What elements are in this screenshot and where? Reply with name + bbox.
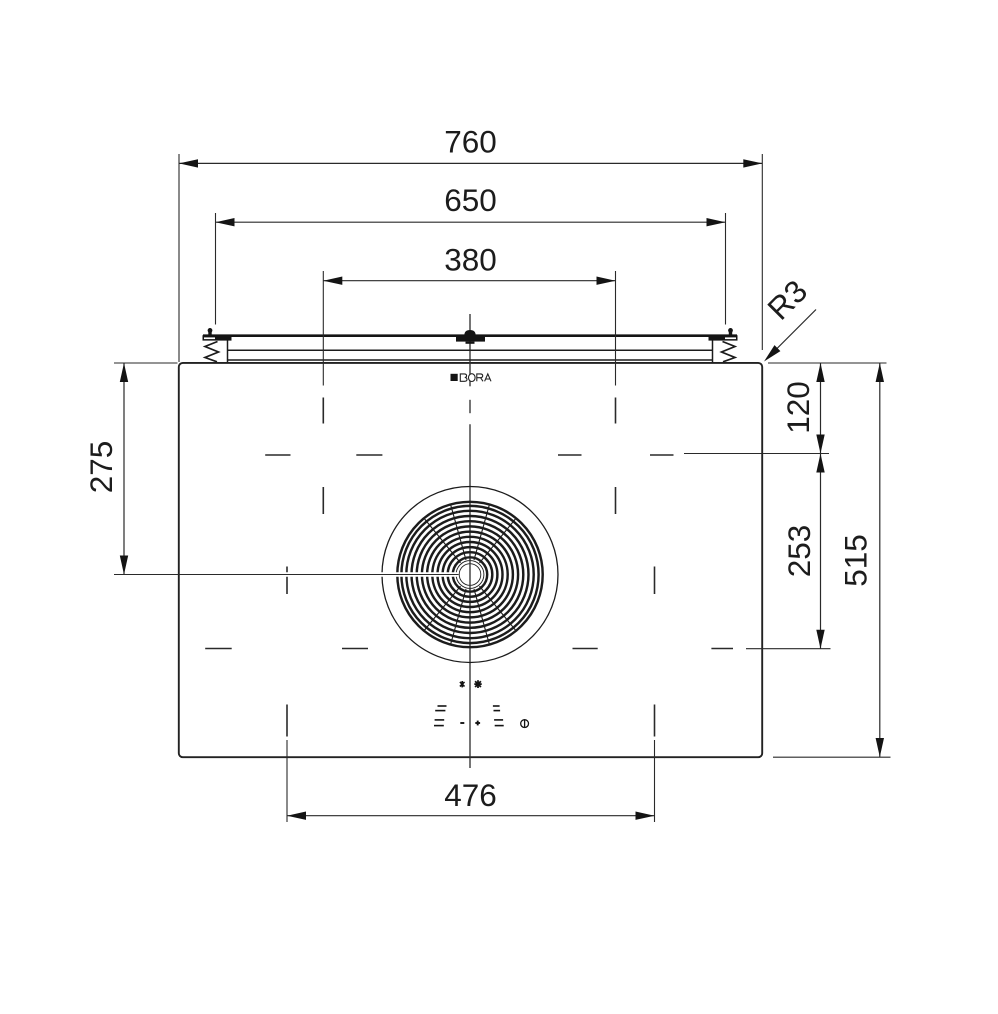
svg-text:253: 253: [781, 525, 817, 578]
svg-text:380: 380: [444, 241, 497, 277]
svg-text:275: 275: [83, 441, 119, 494]
svg-text:515: 515: [838, 534, 874, 587]
svg-text:120: 120: [780, 381, 816, 434]
svg-text:650: 650: [444, 182, 497, 218]
svg-text:476: 476: [444, 777, 497, 813]
svg-text:760: 760: [444, 123, 497, 159]
